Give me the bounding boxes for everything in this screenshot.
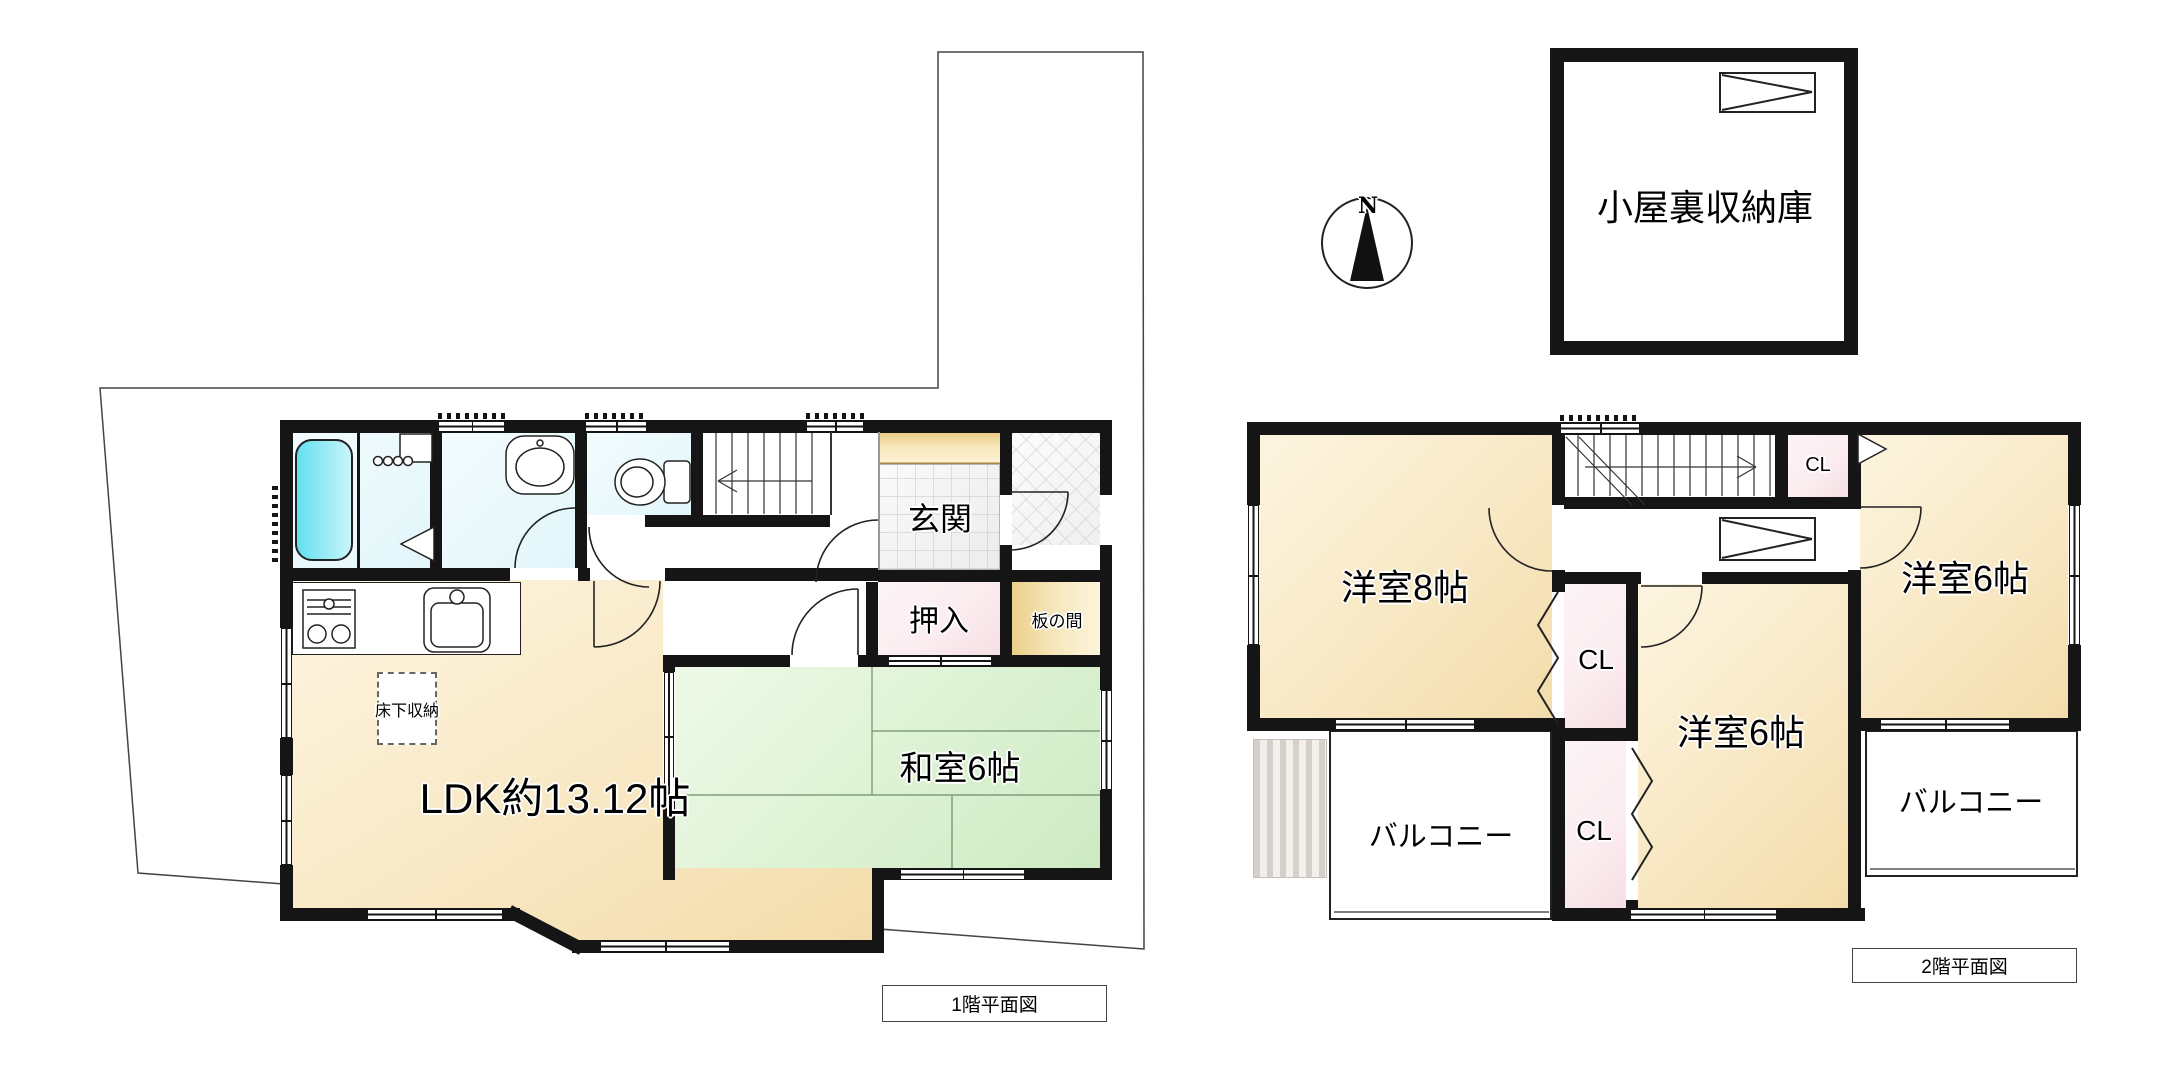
balcony-right-label: バルコニー [1888,784,2054,816]
wall [1100,545,1112,690]
closet-mid-label: CL [1573,643,1619,677]
shutter-comb [1560,415,1640,421]
wall [1247,422,2080,435]
genkan-edge [878,432,880,570]
stairs-edge [830,432,832,515]
closet-top-label: CL [1798,451,1838,479]
window [2069,505,2080,645]
window [1880,719,2010,730]
wall [675,655,790,667]
wall [1000,545,1012,667]
wall [1000,420,1012,495]
wall [1552,422,1565,505]
wall [280,568,510,581]
wall [575,432,587,568]
attic-label: 小屋裏収納庫 [1590,184,1820,226]
kitchen-counter [292,582,521,655]
wall [691,432,703,527]
wall [1564,497,1860,509]
wall [578,568,590,581]
wall [1247,422,1260,505]
genkan-label: 玄関 [904,497,976,537]
lower-roof-strip [1253,739,1327,878]
shutter-comb [806,413,864,419]
genkan-step-board [880,432,1000,464]
window [900,869,1025,880]
wall [645,515,830,527]
window [806,421,864,432]
wall [1848,422,1861,509]
window [1630,909,1777,920]
entrance-porch [1012,432,1100,545]
window [600,941,730,952]
window [585,421,647,432]
wall [1702,572,1860,584]
floor1-title-box: 1階平面図 [882,985,1107,1022]
wall [878,570,1112,582]
window [1101,690,1112,790]
bathroom-floor [292,432,432,568]
wall [1100,420,1112,495]
floor2-title: 2階平面図 [1921,952,2008,979]
wall [872,868,884,952]
shutter-comb [438,413,505,419]
ldk-label: LDK約13.12帖 [370,765,740,825]
bedroom6-right-label: 洋室6帖 [1892,554,2038,598]
toilet-floor [587,432,691,515]
underfloor-storage-label: 床下収納 [352,694,462,724]
window [367,909,503,920]
balcony-left-label: バルコニー [1360,817,1522,851]
oshiire-label: 押入 [889,599,989,637]
wall [1552,572,1641,584]
wall [1775,422,1788,509]
itanoma-label: 板の間 [1014,606,1100,632]
shutter-comb [585,413,647,419]
wall [1626,584,1638,741]
wall [430,432,442,568]
window [1560,423,1640,434]
bedroom6-bottom-label: 洋室6帖 [1668,708,1814,752]
wall [280,738,293,775]
floor1-title: 1階平面図 [951,990,1038,1017]
oshiire-sliding-door [888,656,992,666]
bath-partition [357,432,360,568]
closet-bottom-label: CL [1571,814,1617,848]
bedroom8-label: 洋室8帖 [1330,562,1480,608]
wall [1100,790,1112,880]
wall [663,655,675,672]
vent-comb [272,482,278,562]
wall [1848,570,1861,921]
washitsu-label: 和室6帖 [880,742,1040,788]
floor-plan-canvas: LDK約13.12帖 床下収納 和室6帖 押入 板の間 玄関 洋室8帖 洋室6帖… [0,0,2183,1072]
wall [1552,724,1565,920]
window [281,775,292,865]
wall [2068,422,2081,505]
window [438,421,505,432]
compass-north-label: N [1354,192,1382,220]
window [1248,505,1259,645]
wall [1552,728,1626,741]
floor2-title-box: 2階平面図 [1852,948,2077,983]
window [281,628,292,738]
wall [280,420,293,628]
window [1335,719,1475,730]
wall [665,568,878,581]
washroom-floor [442,432,575,568]
